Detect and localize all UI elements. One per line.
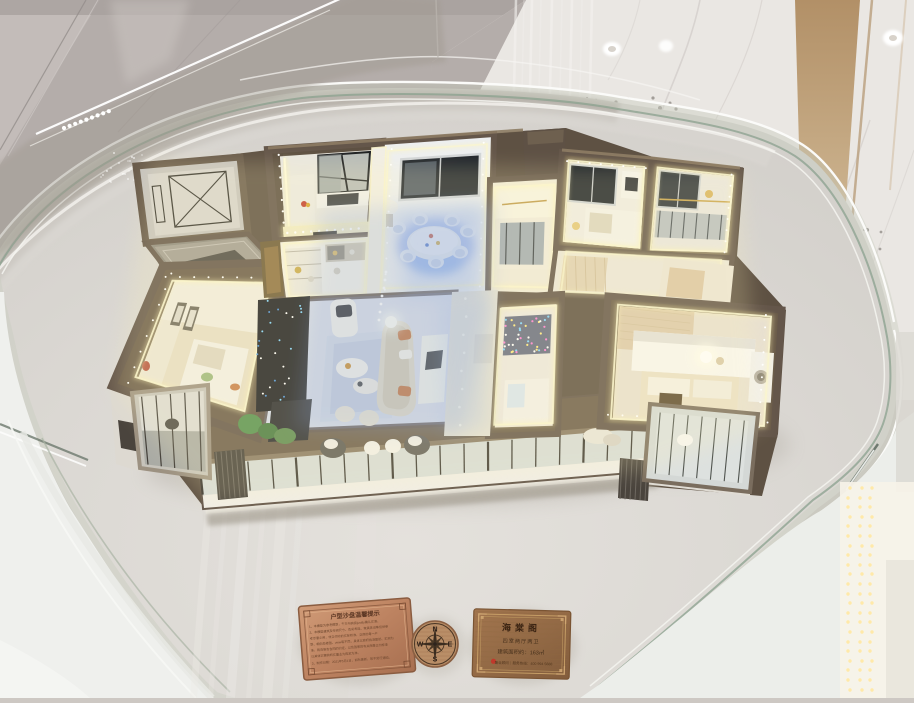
svg-text:S: S: [433, 657, 438, 664]
svg-text:W: W: [417, 642, 424, 649]
svg-text:海棠阁: 海棠阁: [502, 621, 541, 633]
svg-text:E: E: [448, 642, 453, 649]
svg-text:N: N: [432, 627, 437, 634]
